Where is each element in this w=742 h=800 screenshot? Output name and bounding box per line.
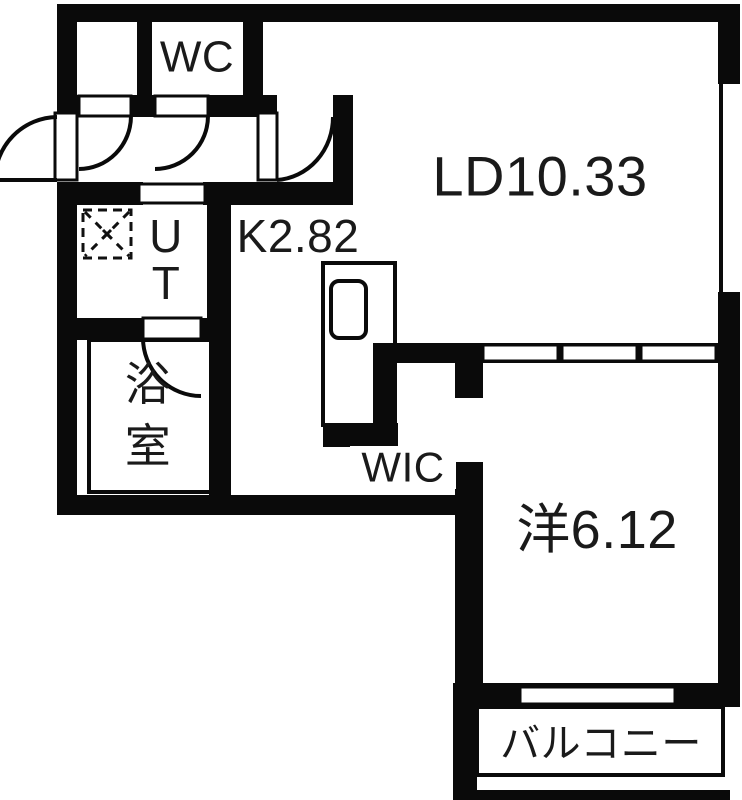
- wall-right-main: [718, 296, 740, 707]
- wall-right-upper: [718, 22, 740, 80]
- wall-hall-bottom-right: [203, 182, 353, 205]
- wc-label: WC: [160, 33, 234, 82]
- wall-bath-right: [209, 340, 231, 497]
- utility-sliding-door-leaf: [139, 184, 205, 203]
- wall-balcony-jamb: [453, 683, 477, 795]
- kitchen-sink: [331, 281, 366, 338]
- wall-closet-wc-divider: [137, 22, 152, 95]
- floor-plan-canvas: WC LD10.33 K2.82 UT 浴室 WIC 洋6.12 バルコニー: [0, 0, 742, 800]
- wall-section-bottom: [57, 495, 483, 515]
- wic-label: WIC: [361, 444, 444, 491]
- closet-door-leaf: [79, 96, 131, 116]
- balcony-label: バルコニー: [500, 722, 702, 766]
- wall-wic-stub: [455, 363, 483, 398]
- kitchen-label: K2.82: [237, 210, 360, 262]
- bath-door-leaf: [143, 318, 201, 339]
- entry-door-leaf: [55, 113, 77, 180]
- utility-label: UT: [149, 210, 183, 309]
- wall-hall-bottom-left: [57, 182, 143, 205]
- ld-bedroom-sliding-panel-1: [483, 345, 558, 361]
- wall-left-lower: [57, 182, 77, 515]
- bedroom-balcony-window: [520, 687, 675, 704]
- ld-bedroom-sliding-panel-2: [562, 345, 637, 361]
- wc-door-leaf: [155, 96, 208, 116]
- wall-bath-top-right: [201, 318, 231, 340]
- wall-top: [57, 4, 740, 22]
- floor-plan-page: WC LD10.33 K2.82 UT 浴室 WIC 洋6.12 バルコニー: [0, 0, 742, 800]
- wall-bottom-strip: [453, 790, 730, 800]
- ld-bedroom-sliding-panel-3: [641, 345, 716, 361]
- ld-door-leaf: [258, 113, 277, 180]
- wall-bath-top-left: [77, 318, 143, 340]
- ld-right-window-glass-line: [719, 80, 723, 296]
- wall-bedroom-left: [455, 462, 483, 683]
- western-room-label: 洋6.12: [516, 500, 678, 560]
- living-dining-label: LD10.33: [432, 145, 647, 208]
